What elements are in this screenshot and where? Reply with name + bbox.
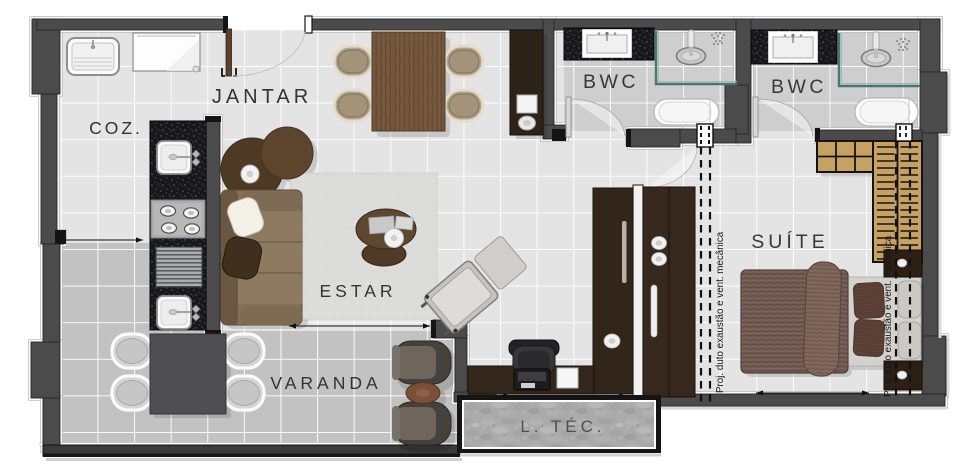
svg-text:COZ.: COZ. (89, 118, 143, 138)
svg-text:VARANDA: VARANDA (270, 373, 381, 393)
svg-text:JANTAR: JANTAR (212, 86, 312, 108)
svg-text:Proj. duto exaustão e vent. me: Proj. duto exaustão e vent. mecânica (715, 231, 726, 393)
svg-text:ESTAR: ESTAR (319, 281, 396, 301)
svg-text:BWC: BWC (771, 76, 827, 98)
svg-text:BWC: BWC (583, 71, 639, 93)
svg-text:SUÍTE: SUÍTE (751, 230, 828, 253)
svg-text:L. TÉC.: L. TÉC. (520, 417, 605, 436)
svg-text:Proj. duto exaustão e vent. me: Proj. duto exaustão e vent. mecânica (883, 235, 894, 397)
